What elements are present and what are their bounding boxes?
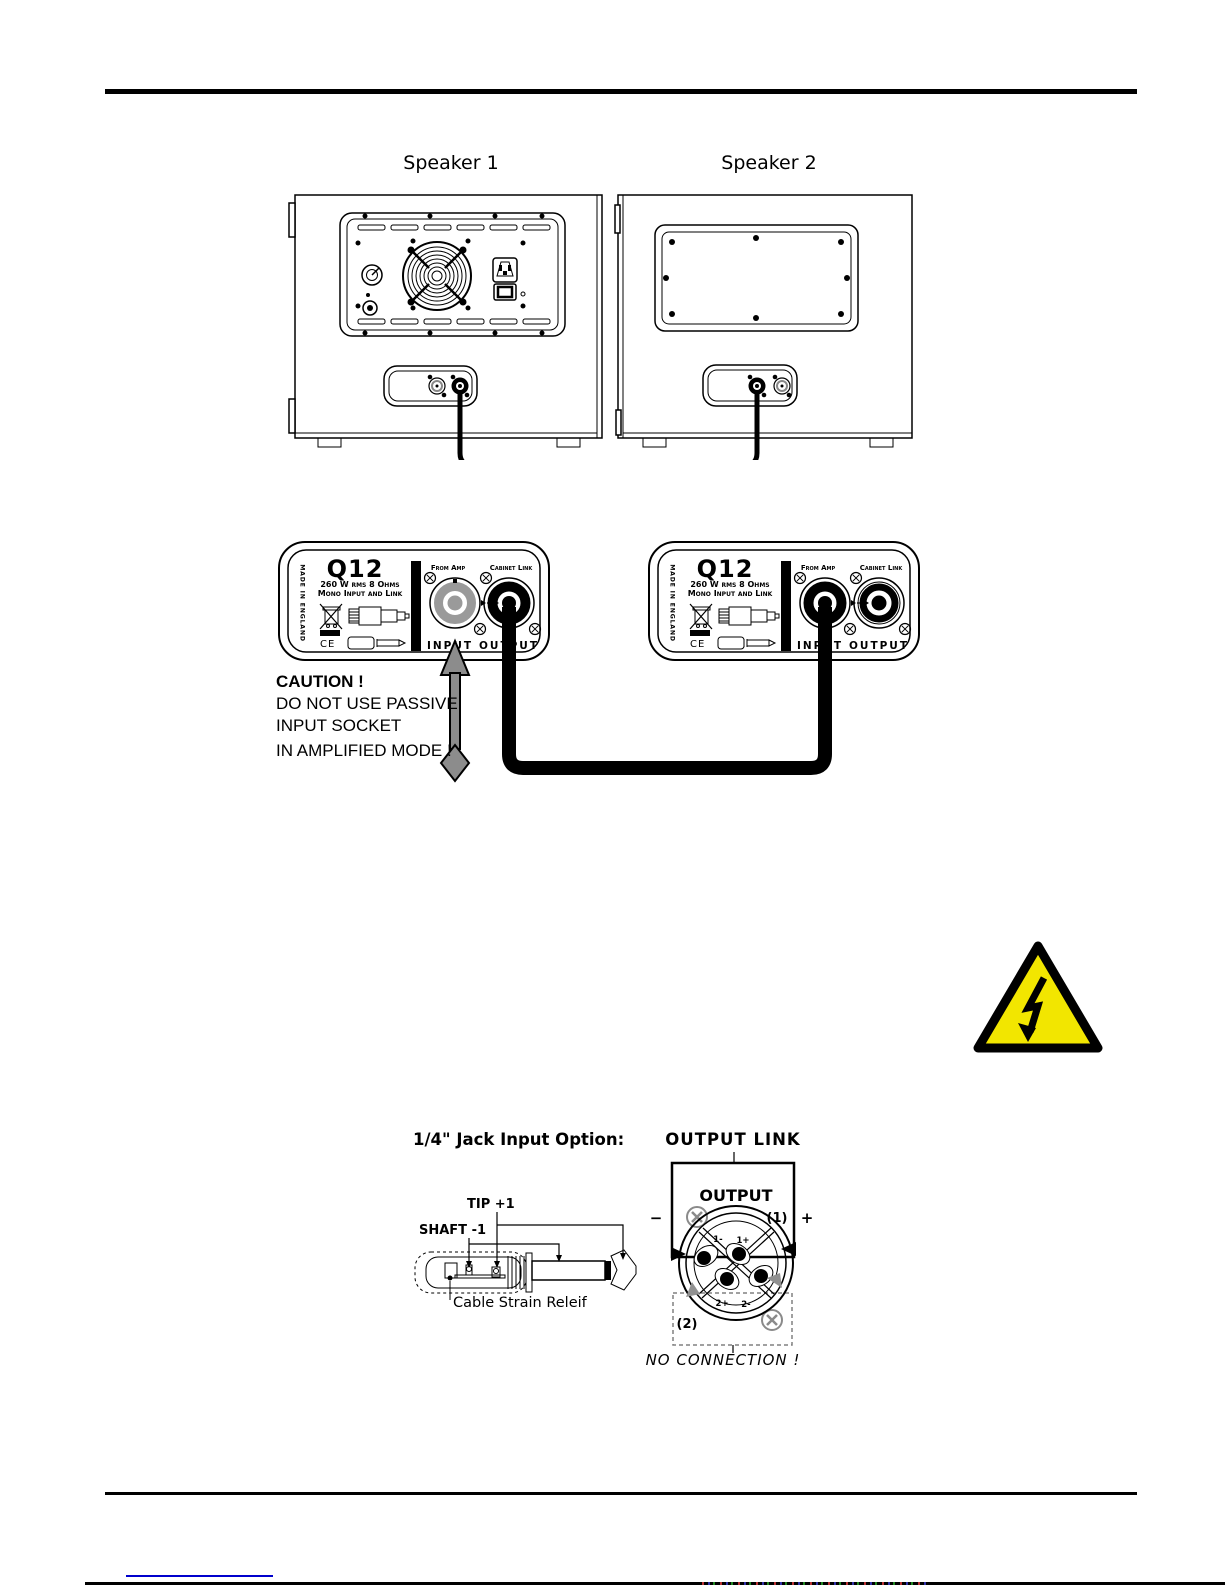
terminal-1minus-label: 1- <box>713 1235 723 1245</box>
caution-line: IN AMPLIFIED MODE ! <box>276 740 476 762</box>
manual-page: Speaker 1 Speaker 2 <box>0 0 1225 1585</box>
cabinet-foot <box>557 438 580 447</box>
input-jack-socket <box>363 301 377 315</box>
terminal-slots <box>690 1239 777 1294</box>
wiring-detail-diagrams: 1/4" Jack Input Option: OUTPUT LINK TIP … <box>405 1115 825 1377</box>
cabinet-foot <box>643 438 666 447</box>
jack-option-title: 1/4" Jack Input Option: <box>413 1130 624 1149</box>
speaker-link-cable <box>460 394 757 460</box>
amp-panel <box>340 213 565 336</box>
caution-line: DO NOT USE PASSIVE <box>276 693 476 715</box>
terminal-2plus-label: 2+ <box>715 1299 728 1309</box>
terminal-2minus-label: 2- <box>741 1300 751 1310</box>
iec-power-inlet <box>493 258 517 282</box>
shaft-label: SHAFT -1 <box>419 1223 486 1238</box>
speakon-socket-plugged <box>451 375 470 398</box>
leader-lines <box>469 1212 623 1261</box>
cabinet-corner-bracket <box>615 205 620 233</box>
power-switch <box>494 284 516 300</box>
caution-note: CAUTION ! DO NOT USE PASSIVE INPUT SOCKE… <box>276 671 476 762</box>
speaker1-label: Speaker 1 <box>403 152 498 174</box>
volume-knob <box>362 265 382 285</box>
speaker2-cabinet <box>615 195 912 447</box>
jack-shaft <box>532 1261 605 1280</box>
footer-link-underline[interactable] <box>126 1575 273 1577</box>
cabinet-link-cable <box>509 607 825 768</box>
strain-relief-label: Cable Strain Releif <box>453 1295 588 1311</box>
output-plate-label: OUTPUT <box>699 1186 772 1205</box>
threaded-bushing <box>508 1253 532 1292</box>
output-link-title: OUTPUT LINK <box>665 1130 801 1149</box>
speakon-socket-empty <box>773 375 792 398</box>
blank-panel <box>655 225 858 331</box>
top-rule <box>105 89 1137 94</box>
jack-plug-diagram: TIP +1 SHAFT -1 <box>415 1197 636 1311</box>
cabinet-foot <box>870 438 893 447</box>
plus-polarity-label: + <box>801 1209 814 1227</box>
speakon-socket-empty <box>428 375 447 398</box>
socket2-label: (2) <box>677 1317 698 1332</box>
speaker2-label: Speaker 2 <box>721 152 816 174</box>
speakers-diagram: Speaker 1 Speaker 2 <box>280 148 930 460</box>
cabinet-corner-bracket <box>616 410 621 435</box>
caution-line: INPUT SOCKET <box>276 715 476 737</box>
no-connection-label: NO CONNECTION ! <box>646 1351 801 1369</box>
cabinet-corner-bracket <box>289 399 295 433</box>
speakon-socket-plugged <box>748 375 767 398</box>
speaker1-cabinet <box>289 195 602 447</box>
speaker2-connector-plate <box>703 365 797 406</box>
speaker1-connector-plate <box>384 366 477 406</box>
q12-panel-right <box>649 542 919 660</box>
led-indicator <box>366 293 370 297</box>
power-led <box>521 292 525 296</box>
tip-label: TIP +1 <box>467 1197 515 1212</box>
tip-insulator-band <box>605 1261 611 1280</box>
warning-triangle <box>978 946 1098 1048</box>
wire-arrow-right <box>781 1242 796 1256</box>
fan-icon <box>403 242 471 310</box>
minus-polarity-label: − <box>650 1209 663 1227</box>
bottom-rule <box>105 1492 1137 1495</box>
caution-title: CAUTION ! <box>276 671 476 693</box>
terminal-1plus-label: 1+ <box>736 1236 749 1246</box>
high-voltage-warning-icon <box>972 938 1108 1058</box>
cabinet-corner-bracket <box>289 203 295 237</box>
cabinet-foot <box>318 438 341 447</box>
output-link-diagram: OUTPUT − + (1) (2) <box>646 1152 814 1369</box>
